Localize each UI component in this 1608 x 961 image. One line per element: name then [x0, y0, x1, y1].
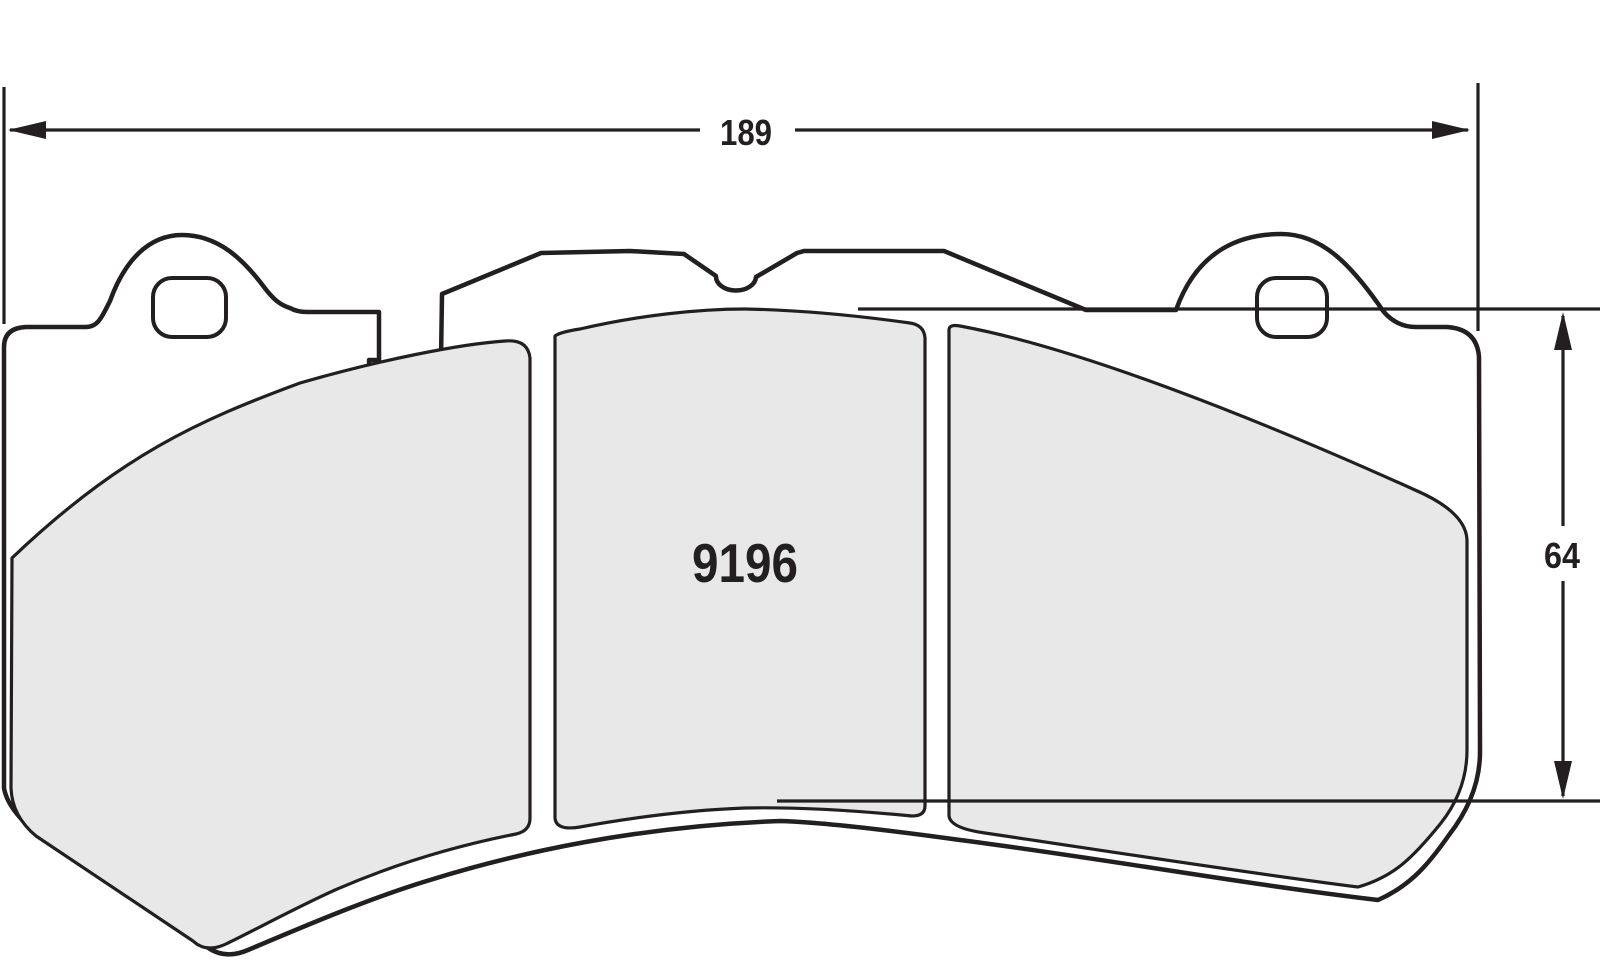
drawing-canvas: 189 64 9196 — [0, 0, 1608, 961]
mounting-hole-left — [153, 278, 226, 337]
arrowhead-width-left — [8, 121, 46, 139]
width-dimension-label: 189 — [720, 112, 772, 153]
arrowhead-height-bottom — [1554, 761, 1572, 799]
arrowhead-height-top — [1554, 312, 1572, 350]
height-dimension-label: 64 — [1544, 535, 1580, 576]
arrowhead-width-right — [1432, 121, 1470, 139]
part-number-label: 9196 — [692, 532, 798, 594]
brake-pad-technical-drawing: 189 64 9196 — [0, 0, 1608, 961]
